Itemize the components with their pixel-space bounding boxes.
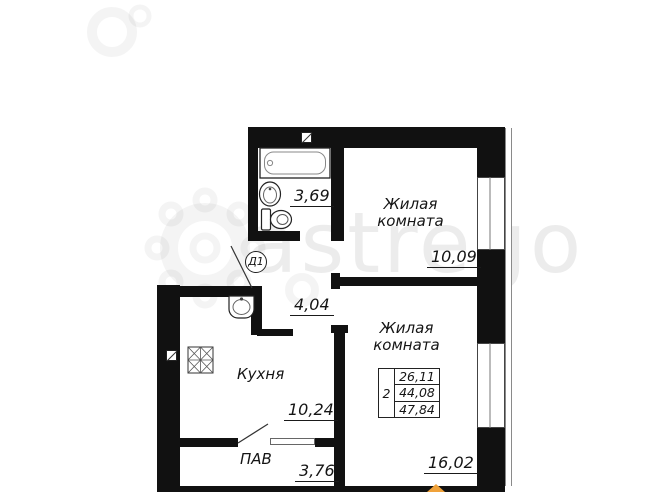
bathtub-icon: [260, 148, 330, 178]
stamp-total-area: 47,84: [395, 401, 439, 417]
living-top-area: 10,09: [427, 248, 481, 268]
pantry-door-swing: [238, 424, 268, 443]
apartment-stamp-table: 2 26,11 44,08 47,84: [378, 368, 440, 418]
bathroom-area: 3,69: [290, 187, 334, 207]
hallway-area: 4,04: [290, 296, 334, 316]
living-bottom-area: 16,02: [424, 454, 478, 474]
pantry-area: 3,76: [295, 462, 339, 482]
kitchen-name: Кухня: [237, 366, 284, 383]
pantry-name: ПАВ: [240, 451, 272, 468]
vent-diagonal-left: [167, 351, 177, 361]
bathroom-sink-icon: [260, 182, 281, 206]
kitchen-area: 10,24: [284, 401, 338, 421]
toilet-icon: [262, 209, 292, 230]
stove-icon: [188, 347, 213, 373]
floor-plan: astrego: [0, 0, 670, 492]
stamp-mid-area: 44,08: [395, 384, 439, 400]
stamp-rooms-count: 2: [379, 369, 395, 417]
orange-marker: [427, 484, 445, 492]
stamp-living-area: 26,11: [395, 369, 439, 384]
living-top-name: Жилая комната: [358, 196, 463, 230]
kitchen-sink-icon: [229, 296, 254, 318]
living-bottom-name: Жилая комната: [354, 320, 459, 354]
door-tag-d1: Д1: [245, 251, 267, 273]
vent-diagonal-top: [302, 133, 312, 143]
